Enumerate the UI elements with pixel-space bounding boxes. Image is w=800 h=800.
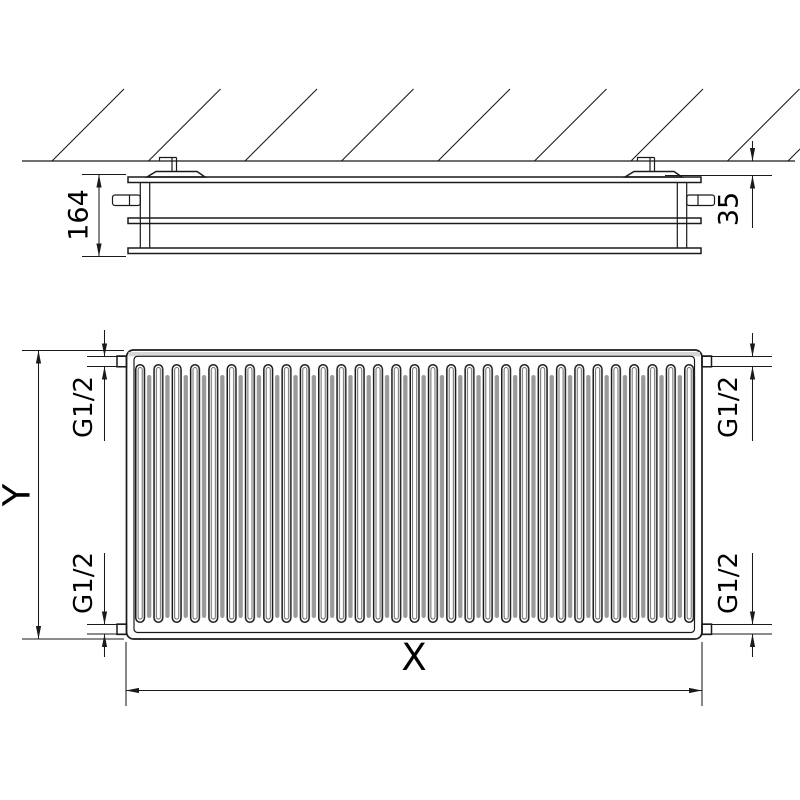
- height-dim-label: Y: [0, 483, 39, 507]
- dimension-height-Y: Y: [0, 351, 124, 640]
- connection-stub-top-left: [87, 356, 127, 367]
- top-view-side-section: 164 35: [22, 89, 800, 257]
- radiator-front-panel: [127, 350, 703, 639]
- connection-size-label: G1/2: [69, 552, 99, 614]
- dimension-connection-bottom-right: G1/2: [714, 552, 755, 657]
- panel-back: [128, 177, 701, 183]
- connection-stub-top-right: [702, 356, 772, 367]
- wall-gap-value-label: 35: [714, 192, 745, 226]
- fin-corrugation-area: [135, 364, 696, 623]
- dimension-depth-164: 164: [64, 175, 127, 257]
- dimension-connection-top-left: G1/2: [69, 330, 107, 441]
- depth-value-label: 164: [64, 189, 95, 241]
- front-view: G1/2 G1/2 G1/2 G1/2: [0, 330, 772, 706]
- panel-front: [128, 248, 701, 254]
- dimension-connection-top-right: G1/2: [714, 333, 755, 441]
- wall-hatching: [52, 89, 800, 161]
- panel-top-edge-band: [129, 352, 701, 356]
- drawing-canvas: 164 35: [0, 0, 800, 800]
- dimension-connection-bottom-left: G1/2: [69, 552, 107, 657]
- panel-middle: [128, 218, 701, 224]
- dimension-wall-gap-35: 35: [665, 141, 772, 228]
- connection-size-label: G1/2: [714, 376, 744, 438]
- radiator-panels-edge: [128, 177, 701, 254]
- radiator-technical-drawing: 164 35: [0, 0, 800, 800]
- side-connection-stub-left: [113, 195, 141, 206]
- connection-size-label: G1/2: [69, 376, 99, 438]
- side-connection-stub-right: [687, 195, 715, 206]
- connection-stub-bottom-right: [702, 624, 772, 634]
- connection-size-label: G1/2: [714, 552, 744, 614]
- connection-stub-bottom-left: [87, 624, 127, 634]
- end-connection-tubes: [140, 183, 686, 249]
- width-dim-label: X: [401, 636, 426, 679]
- dimension-width-X: X: [126, 636, 702, 706]
